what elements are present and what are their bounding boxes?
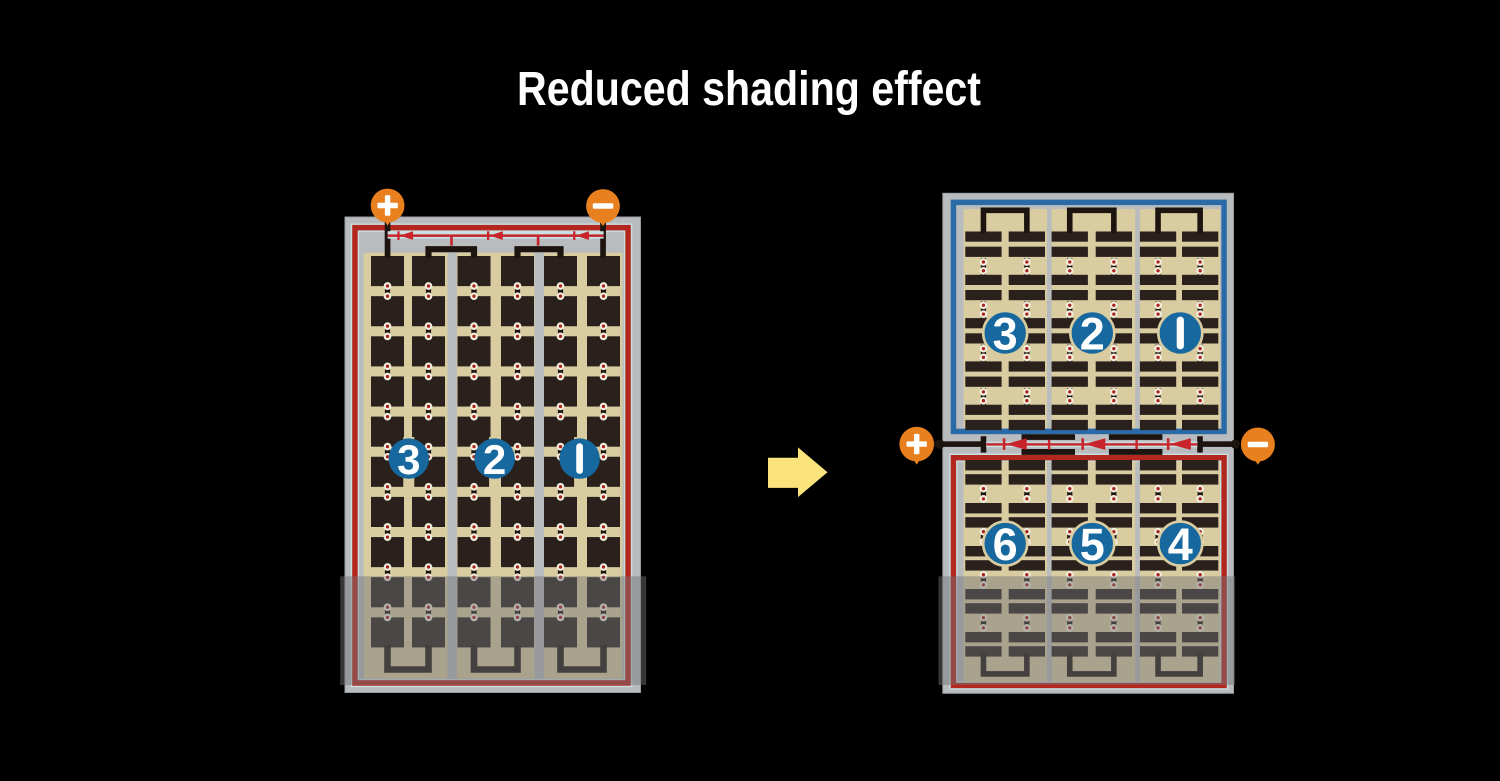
svg-text:3: 3 <box>397 436 420 483</box>
svg-text:5: 5 <box>1080 519 1105 570</box>
svg-text:Reduced shading effect: Reduced shading effect <box>517 63 981 116</box>
svg-text:4: 4 <box>1168 519 1193 570</box>
svg-text:2: 2 <box>1080 308 1105 359</box>
svg-text:2: 2 <box>483 436 506 483</box>
svg-text:3: 3 <box>993 308 1018 359</box>
svg-text:6: 6 <box>993 519 1018 570</box>
